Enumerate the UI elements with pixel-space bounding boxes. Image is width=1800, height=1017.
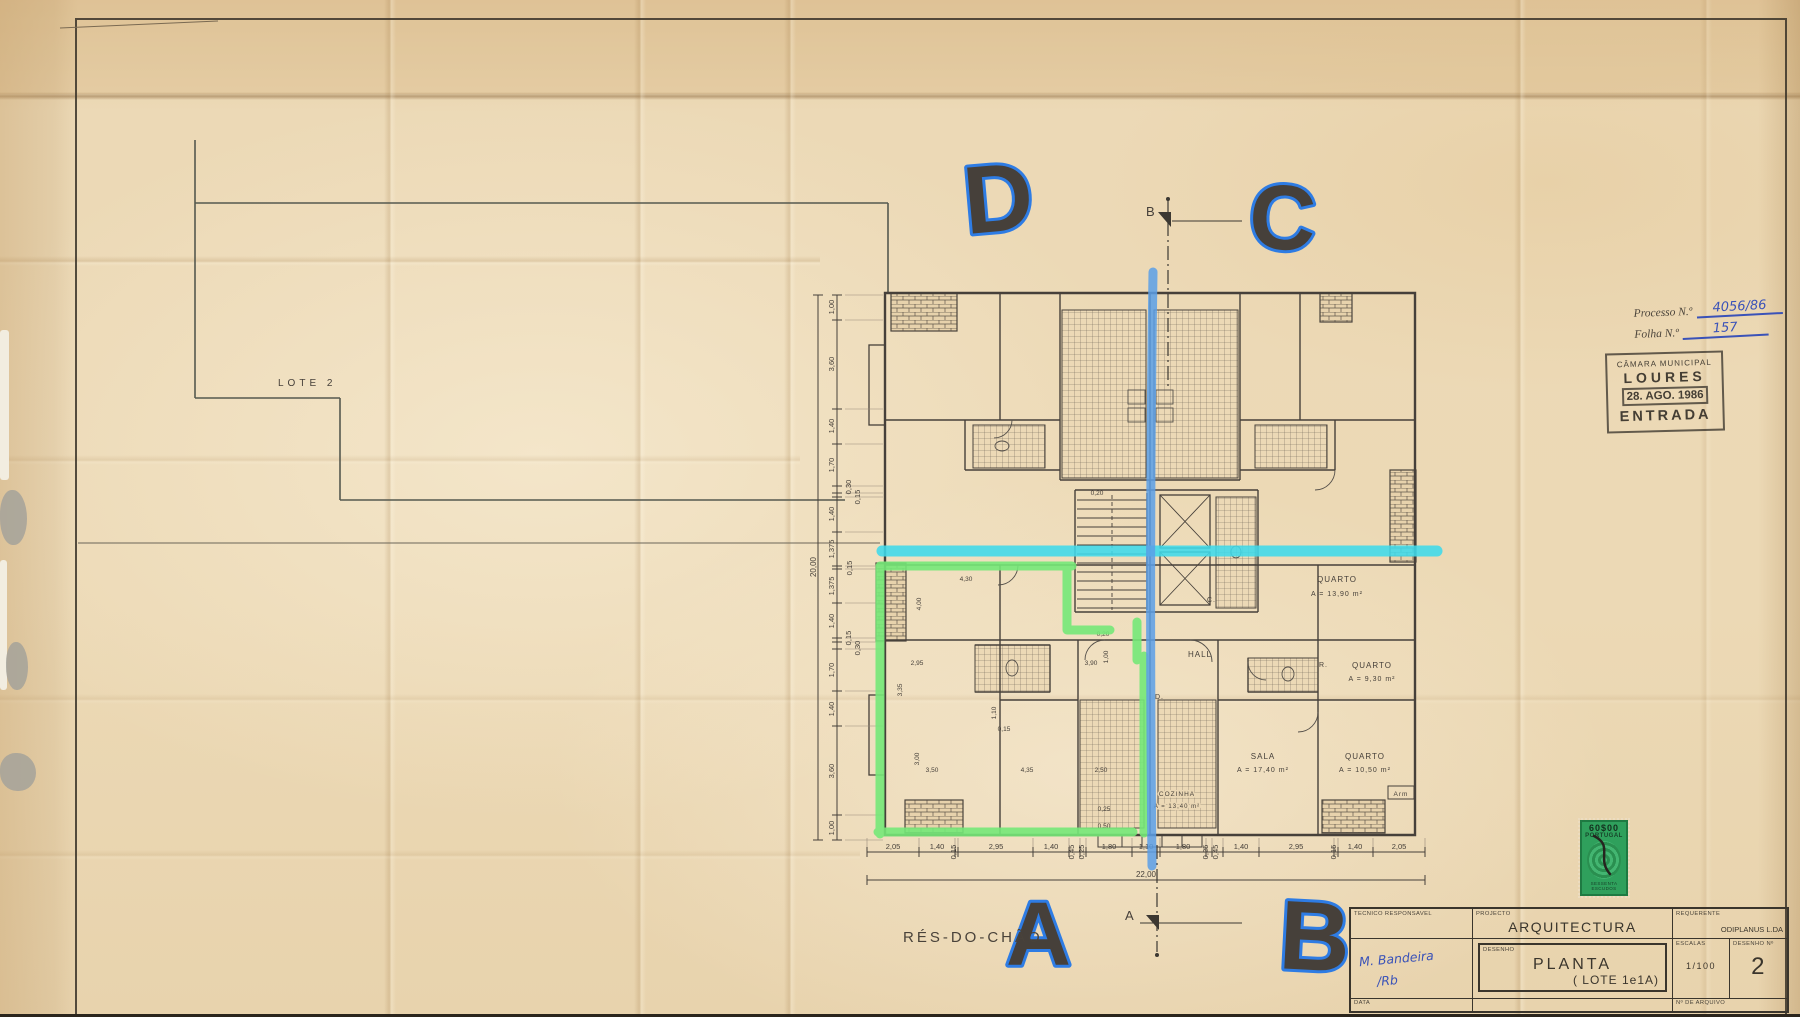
- dim-text: 0,45: [1211, 845, 1220, 860]
- dim-text: 0,30: [853, 641, 862, 656]
- dims-left: 1,00 3,60 1,40 1,70 0,30 0,15 1,40 1,375…: [809, 300, 862, 836]
- dim-text: 1,375: [827, 540, 836, 559]
- dim-text: 0,20: [1091, 490, 1104, 497]
- room-name: HALL: [1188, 650, 1212, 659]
- closet-label-arm: Arm: [1394, 791, 1409, 798]
- processo-value-handwritten: 4056/86: [1696, 297, 1783, 318]
- titleblock-arquivo-cell: Nº DE ARQUIVO: [1673, 999, 1787, 1011]
- dim-text: 1,70: [827, 458, 836, 473]
- dim-text: 1,40: [930, 842, 945, 851]
- dim-text: 1,40: [1044, 842, 1059, 851]
- dim-text: 1,375: [827, 577, 836, 596]
- room-name: QUARTO: [1352, 661, 1392, 670]
- title-block: TECNICO RESPONSAVEL PROJECTO ARQUITECTUR…: [1349, 907, 1789, 1013]
- lote2-label: LOTE 2: [278, 378, 336, 389]
- dim-text: 1,40: [827, 507, 836, 522]
- processo-label: Processo N.º: [1633, 306, 1692, 320]
- escalas-value: 1/100: [1673, 961, 1729, 971]
- stamp-city: LOURES: [1611, 368, 1717, 387]
- dim-text: 2,95: [911, 660, 924, 667]
- dim-text: 1,00: [827, 821, 836, 836]
- room-area: A = 17,40 m²: [1237, 767, 1289, 774]
- escalas-label: ESCALAS: [1676, 941, 1706, 947]
- room-area: A = 9,30 m²: [1349, 676, 1396, 683]
- marker-letter-c: C: [1247, 165, 1319, 270]
- desenho-inner-box: DESENHO PLANTA ( LOTE 1e1A): [1478, 943, 1667, 992]
- dim-total-bottom: 22,00: [1136, 870, 1157, 879]
- fiscal-stamp-ink-mark: [1580, 820, 1628, 896]
- titleblock-data-cell: DATA: [1351, 999, 1473, 1011]
- dim-text: 2,05: [886, 842, 901, 851]
- dim-text: 1,80: [1102, 842, 1117, 851]
- dim-text: 0,25: [1201, 845, 1210, 860]
- arquivo-label: Nº DE ARQUIVO: [1676, 1000, 1725, 1006]
- dim-text: 0,15: [844, 631, 853, 646]
- floor-title: RÉS-DO-CHÃO: [903, 929, 1043, 946]
- folha-value-handwritten: 157: [1682, 318, 1769, 339]
- marker-letter-b: B: [1277, 879, 1353, 993]
- dim-text: 4,00: [916, 597, 923, 610]
- requerente-label: REQUERENTE: [1676, 911, 1720, 917]
- dim-text: 0,30: [844, 480, 853, 495]
- titleblock-projecto-cell: PROJECTO ARQUITECTURA: [1473, 909, 1673, 939]
- floor-plan-drawing: LOTE 2: [0, 0, 1800, 1014]
- desenho-detail: ( LOTE 1e1A): [1573, 973, 1659, 987]
- dim-text: 2,50: [1095, 767, 1108, 774]
- dim-text: 1,40: [1348, 842, 1363, 851]
- folha-label: Folha N.º: [1634, 327, 1679, 341]
- dim-text: 0,15: [853, 490, 862, 505]
- dim-text: 1,70: [827, 663, 836, 678]
- stamp-entrada: ENTRADA: [1612, 407, 1718, 426]
- dim-text: 3,60: [827, 357, 836, 372]
- dim-text: 1,40: [827, 702, 836, 717]
- dim-text: 0,25: [1077, 845, 1086, 860]
- room-area: A = 10,50 m²: [1339, 767, 1391, 774]
- marker-letter-d: D: [959, 142, 1037, 255]
- dims-bottom: 2,05 1,40 0,15 2,95 1,40 0,45 0,25 1,80 …: [886, 842, 1407, 879]
- dim-text: 0,15: [1329, 845, 1338, 860]
- room-name: QUARTO: [1317, 575, 1357, 584]
- data-label: DATA: [1354, 1000, 1370, 1006]
- dim-text: 1,00: [1103, 650, 1110, 663]
- dim-text: 3,50: [926, 767, 939, 774]
- dim-text: 1,40: [1234, 842, 1249, 851]
- door-label-d: D.: [1155, 694, 1164, 701]
- numero-label: DESENHO Nº: [1733, 941, 1774, 947]
- dim-text: 1,80: [1176, 842, 1191, 851]
- dim-text: 1,40: [827, 614, 836, 629]
- dim-text: 4,35: [1021, 767, 1034, 774]
- door-label-c: C.: [1207, 597, 1216, 604]
- stamp-date: 28. AGO. 1986: [1621, 386, 1708, 406]
- dim-text: 0,15: [949, 845, 958, 860]
- titleblock-desenho-cell: DESENHO PLANTA ( LOTE 1e1A): [1473, 939, 1673, 999]
- titleblock-signature-cell: M. Bandeira /Rb: [1351, 939, 1473, 999]
- room-name: QUARTO: [1345, 752, 1385, 761]
- fiscal-stamp: 60$00 PORTUGAL SESSENTA ESCUDOS: [1580, 820, 1628, 896]
- dim-text: 4,30: [960, 576, 973, 583]
- dim-text: 3,60: [827, 764, 836, 779]
- dim-text: 0,45: [1067, 845, 1076, 860]
- process-number-block: Processo N.º 4056/86 Folha N.º 157: [1633, 297, 1800, 345]
- section-label-bottom: A: [1125, 908, 1134, 923]
- titleblock-requerente-cell: REQUERENTE ODIPLANUS L.DA: [1673, 909, 1787, 939]
- tecnico-signature: M. Bandeira: [1358, 948, 1434, 969]
- dim-text: 2,05: [1392, 842, 1407, 851]
- dim-text: 3,90: [1085, 660, 1098, 667]
- titleblock-row3-mid: [1473, 999, 1673, 1011]
- dim-text: 0,25: [1098, 806, 1111, 813]
- titleblock-tecnico-cell: TECNICO RESPONSAVEL: [1351, 909, 1473, 939]
- tecnico-signature-2: /Rb: [1376, 972, 1398, 989]
- entry-stamp: CÂMARA MUNICIPAL LOURES 28. AGO. 1986 EN…: [1605, 350, 1725, 433]
- dim-text: 0,15: [998, 726, 1011, 733]
- dim-text: 0,15: [845, 561, 854, 576]
- titleblock-numero-cell: DESENHO Nº 2: [1730, 939, 1787, 999]
- room-area: A = 13,40 m²: [1154, 804, 1200, 810]
- titleblock-escalas-cell: ESCALAS 1/100: [1673, 939, 1730, 999]
- numero-value: 2: [1730, 953, 1787, 981]
- blue-highlight-line: [1151, 272, 1153, 866]
- dim-text: 3,00: [914, 752, 921, 765]
- dim-text: 2,95: [1289, 842, 1304, 851]
- tecnico-label: TECNICO RESPONSAVEL: [1354, 911, 1432, 917]
- site-plan-lines: [60, 21, 888, 543]
- dim-text: 1,00: [827, 300, 836, 315]
- room-name: COZINHA: [1159, 791, 1195, 798]
- desenho-label: DESENHO: [1483, 947, 1514, 953]
- dim-text: 1,40: [827, 419, 836, 434]
- section-label-top: B: [1146, 204, 1155, 219]
- room-area: A = 13,90 m²: [1311, 591, 1363, 598]
- closet-label-r: R.: [1319, 662, 1328, 669]
- dim-text: 1,10: [991, 706, 998, 719]
- scanned-drawing-sheet: LOTE 2: [0, 0, 1800, 1014]
- projecto-label: PROJECTO: [1476, 911, 1511, 917]
- requerente-value: ODIPLANUS L.DA: [1721, 925, 1783, 934]
- dim-text: 2,95: [989, 842, 1004, 851]
- dim-text: 3,35: [897, 683, 904, 696]
- room-name: SALA: [1251, 752, 1275, 761]
- dim-total-left: 20,00: [809, 556, 818, 577]
- projecto-value: ARQUITECTURA: [1473, 919, 1672, 935]
- desenho-value: PLANTA: [1480, 956, 1665, 974]
